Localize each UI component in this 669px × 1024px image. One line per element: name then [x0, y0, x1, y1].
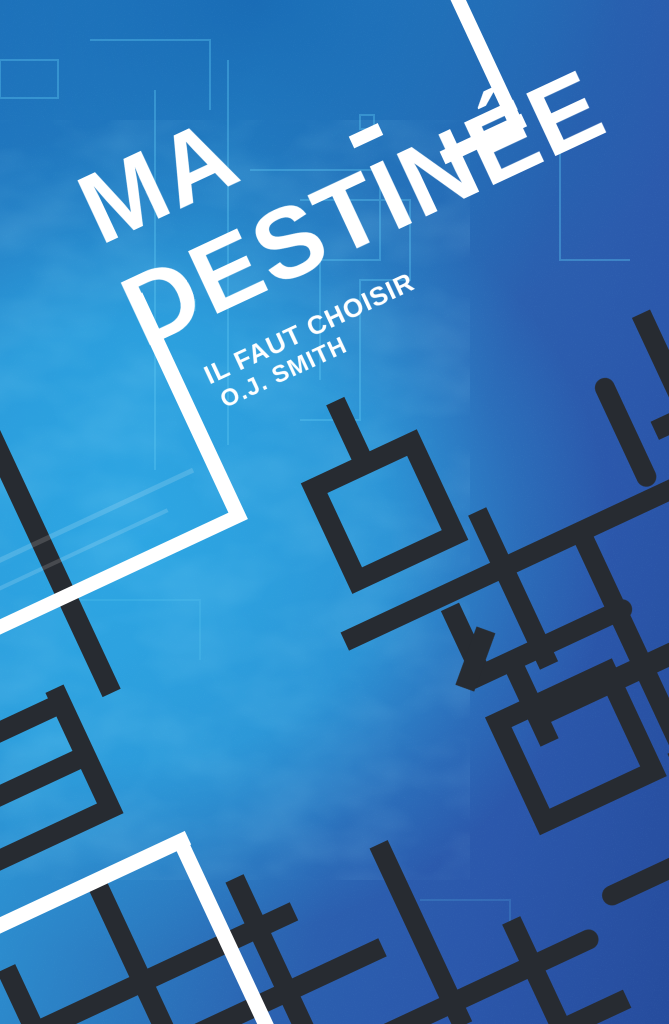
- maze-bar: [45, 684, 123, 821]
- maze-bar: [358, 926, 602, 1024]
- book-cover: MA DESTINÉE IL FAUT CHOISIR O.J. SMITH: [0, 0, 669, 1024]
- maze-bar: [592, 375, 660, 490]
- tilted-art-layer: MA DESTINÉE IL FAUT CHOISIR O.J. SMITH: [0, 0, 669, 1024]
- maze-box: [301, 429, 469, 594]
- maze-bar: [326, 397, 370, 462]
